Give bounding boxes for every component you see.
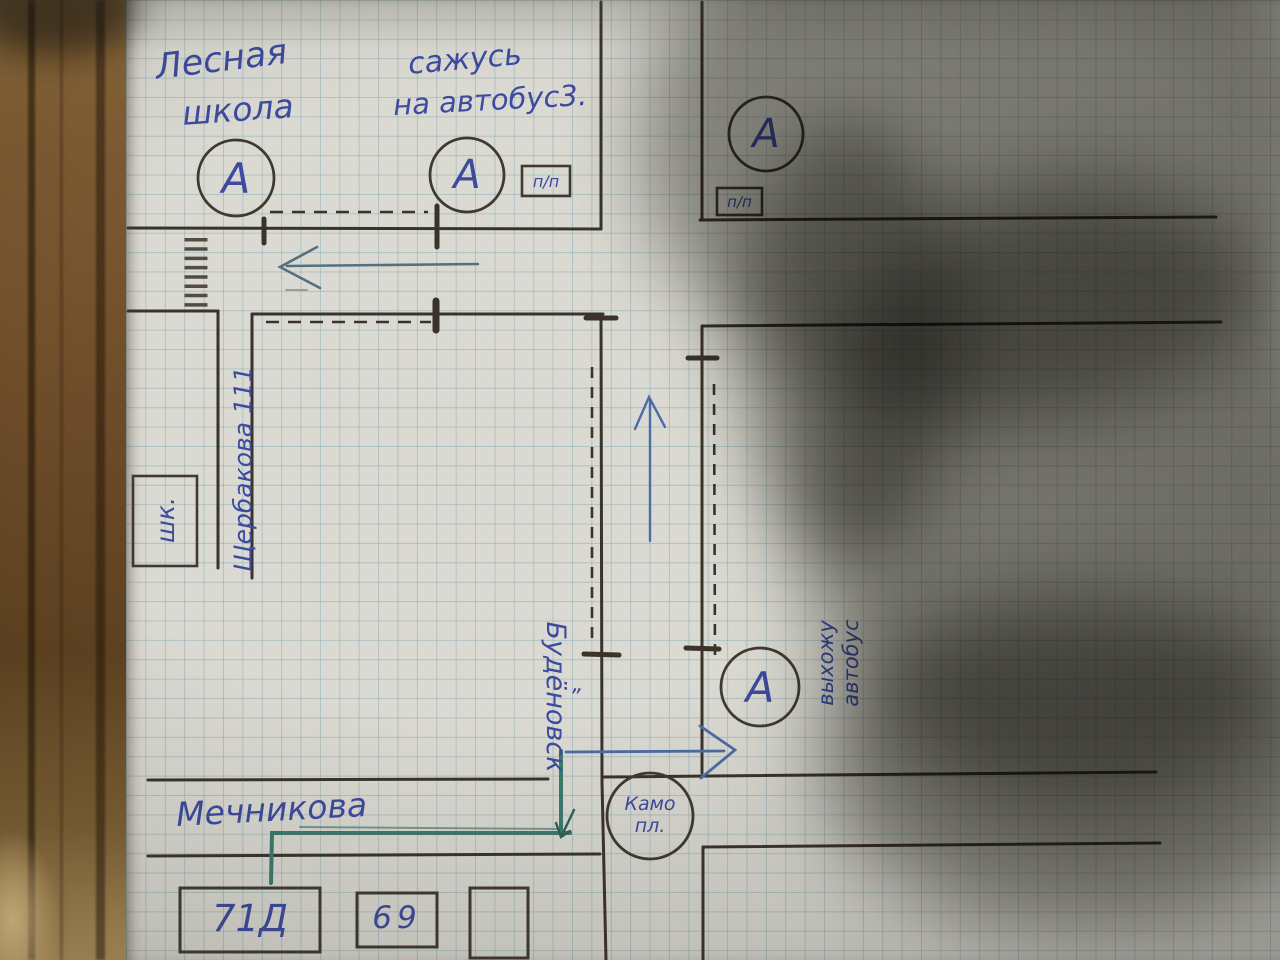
arrow-head: [280, 247, 320, 288]
route-double-stroke: [300, 827, 562, 829]
crossing-label-1: п/п: [522, 166, 570, 196]
school-name-line2: школа: [181, 86, 295, 133]
exit-note-line1: выхожу: [814, 620, 839, 706]
exit-note: выхожу автобус: [812, 581, 866, 745]
house-empty-box: [470, 888, 528, 958]
dashed-vertical-east: [714, 384, 715, 661]
north-direction-arrow: [635, 397, 665, 541]
route-horizontal: [271, 833, 570, 883]
mechnikova-north-west: [148, 779, 548, 780]
bus-stop-letter-exit: А: [721, 648, 799, 726]
house-number-69: 69: [357, 893, 437, 943]
mechnikova-south-west: [148, 854, 600, 856]
arrow-shaft: [566, 751, 724, 752]
budyonovsk-quote-mark: „: [572, 672, 583, 697]
top-street-south-edge-west: [128, 228, 601, 229]
school-box-label: шк.: [134, 490, 196, 550]
top-street-south-edge-east: [700, 217, 1216, 220]
street-name-shcherbakova: Щербакова 111: [229, 357, 257, 582]
exit-note-line2: автобус: [839, 619, 864, 706]
kamo-square-line1: Камо: [624, 794, 675, 816]
bus-stop-letter-top-right: А: [729, 97, 803, 171]
bus-stop-letter-school: А: [198, 140, 274, 216]
mechnikova-south-east: [703, 843, 1160, 847]
second-line-east: [703, 322, 1221, 326]
photo-of-hand-drawn-route-map: Лесная школа сажусь на автобус3. А А А А…: [0, 0, 1280, 960]
kamo-square-label: Камо пл.: [607, 773, 693, 859]
arrow-shaft: [287, 264, 478, 266]
kamo-square-line2: пл.: [635, 816, 666, 838]
vertical-street-west-main: [601, 314, 606, 960]
street-name-budyonovsk: Будёновск: [541, 591, 571, 803]
crossing-label-2: п/п: [717, 188, 762, 215]
bus-stop-letter-boarding: А: [430, 138, 504, 212]
west-direction-arrow: [280, 247, 478, 290]
east-direction-arrow: [566, 726, 735, 778]
dashed-lines: [196, 212, 715, 661]
house-number-71d: 71Д: [180, 888, 320, 948]
tick: [584, 654, 619, 655]
